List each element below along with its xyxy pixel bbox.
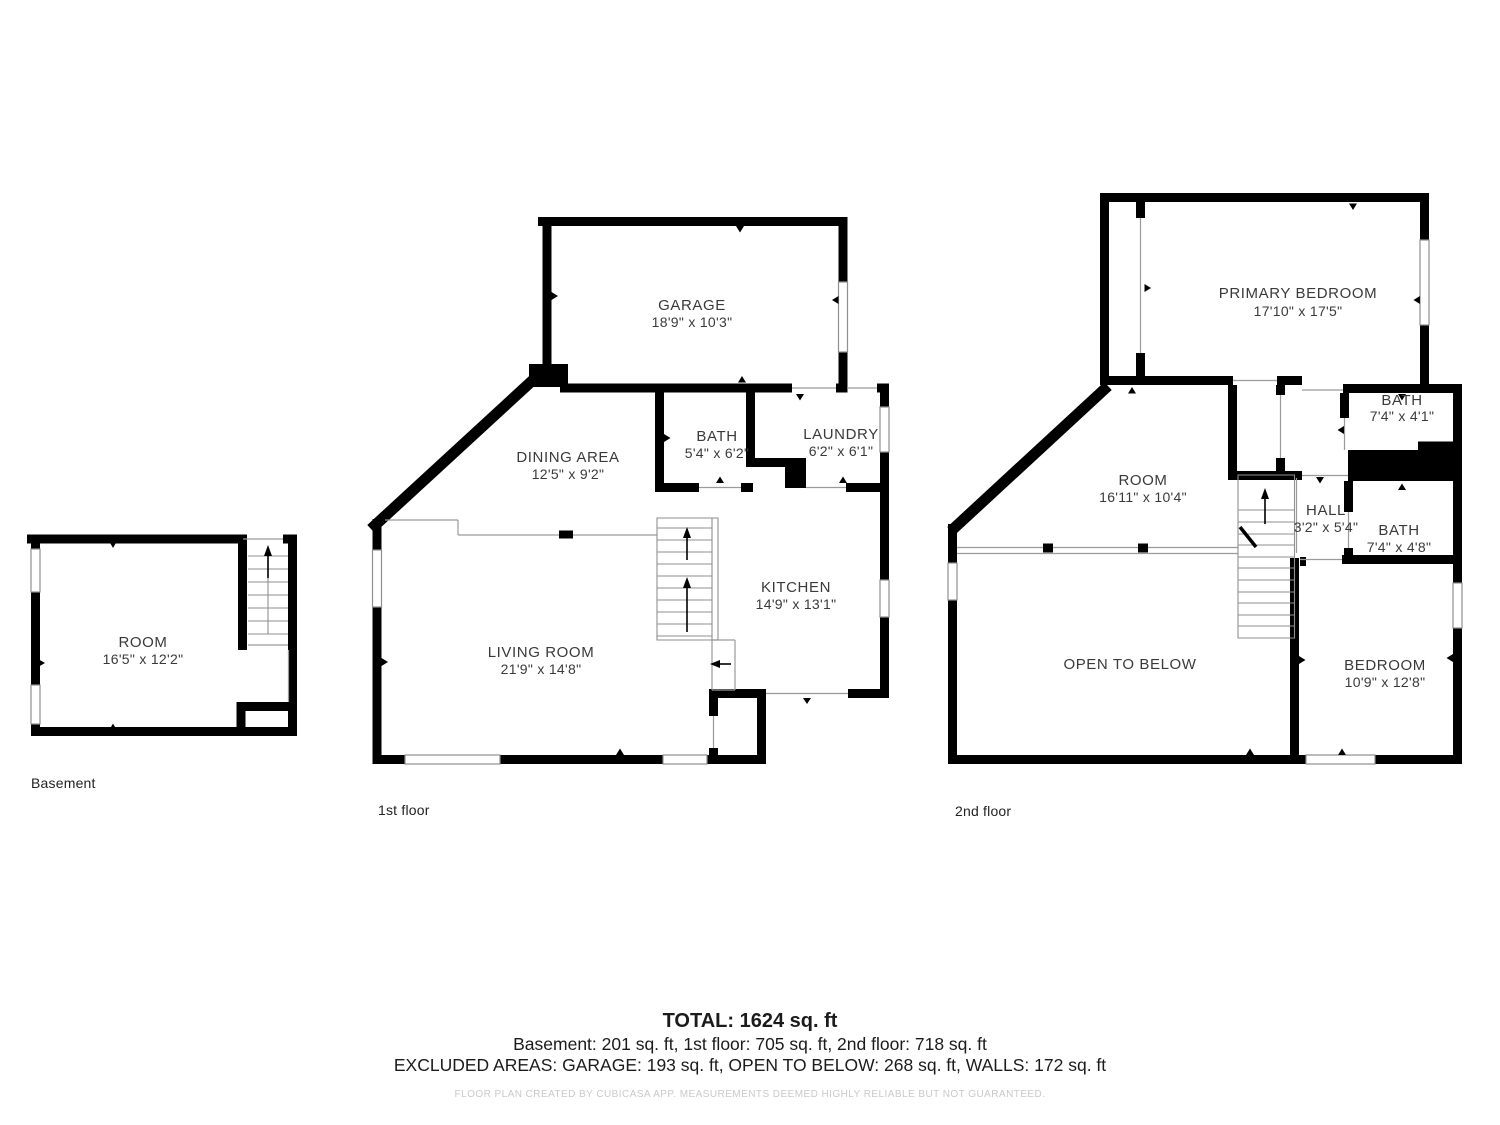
room-2f-name: ROOM: [1118, 472, 1167, 489]
basement-window-left-upper: [31, 549, 40, 592]
floorplan-canvas: ROOM 16'5" x 12'2" Basement: [0, 0, 1500, 1125]
bath-upper-dims: 7'4" x 4'1": [1370, 408, 1435, 424]
garage-dims: 18'9" x 10'3": [652, 314, 733, 330]
hall-name: HALL: [1306, 502, 1346, 519]
open-to-below-name: OPEN TO BELOW: [1063, 656, 1196, 673]
second-floor-door-openings: [957, 218, 1349, 560]
garage-name: GARAGE: [658, 297, 726, 314]
bedroom-window-right: [1453, 583, 1462, 628]
tick-open-bottom: [1246, 749, 1254, 756]
tick-laundry-door-bottom: [839, 477, 847, 484]
railing-post-1: [1043, 544, 1053, 553]
tick-living-left: [382, 658, 389, 666]
second-floor-bath-divider-band: [1348, 442, 1462, 482]
second-floor-stair-arrowhead: [1261, 488, 1269, 499]
living-room-window-left: [373, 550, 382, 607]
kitchen-name: KITCHEN: [761, 579, 831, 596]
second-floor-plan: PRIMARY BEDROOM 17'10" x 17'5" BATH 7'4"…: [948, 193, 1462, 819]
tick-garage-left: [552, 292, 559, 300]
tick-bath2-top: [1398, 484, 1406, 491]
second-floor-diagonal-wall: [951, 386, 1108, 531]
dining-area-name: DINING AREA: [516, 449, 619, 466]
tick-primary-top: [1349, 204, 1357, 211]
kitchen-window-right: [880, 580, 889, 617]
open-below-window-left: [948, 563, 957, 600]
bedroom-dims: 10'9" x 12'8": [1345, 674, 1426, 690]
primary-bedroom-window-right: [1420, 240, 1429, 325]
dining-railing-post: [559, 531, 573, 539]
tick-bath-door: [716, 477, 724, 484]
first-floor-walls: [377, 217, 889, 764]
first-floor-stair-arrowhead-1: [683, 527, 691, 538]
primary-bedroom-name: PRIMARY BEDROOM: [1219, 285, 1377, 302]
bedroom-name: BEDROOM: [1344, 657, 1426, 674]
basement-room-dims: 16'5" x 12'2": [103, 651, 184, 667]
room-2f-dims: 16'11" x 10'4": [1099, 489, 1187, 505]
laundry-window-right: [880, 407, 889, 452]
total-area-text: TOTAL: 1624 sq. ft: [0, 1010, 1500, 1033]
tick-bath1-left: [1338, 426, 1345, 434]
basement-tick-left: [38, 659, 45, 667]
tick-garage-top: [736, 226, 744, 233]
first-floor-stair-arrowhead-2: [683, 577, 691, 588]
bath-upper-name: BATH: [1381, 392, 1422, 409]
basement-room-name: ROOM: [118, 634, 167, 651]
second-floor-label: 2nd floor: [955, 803, 1011, 819]
basement-window-left-lower: [31, 685, 40, 724]
tick-living-bottom: [616, 749, 624, 756]
railing-post-2: [1138, 544, 1148, 553]
tick-garage-door: [738, 376, 746, 383]
tick-room-top: [1128, 387, 1136, 394]
first-floor-bath-nook-block: [785, 458, 806, 488]
kitchen-dims: 14'9" x 13'1": [756, 596, 837, 612]
living-room-window-bottom-2: [663, 755, 707, 764]
basement-stair-arrowhead: [264, 545, 272, 556]
floor-breakdown-text: Basement: 201 sq. ft, 1st floor: 705 sq.…: [0, 1034, 1500, 1055]
basement-plan: ROOM 16'5" x 12'2" Basement: [27, 535, 297, 792]
primary-bedroom-dims: 17'10" x 17'5": [1254, 303, 1343, 319]
laundry-dims: 6'2" x 6'1": [809, 443, 874, 459]
dining-area-dims: 12'5" x 9'2": [532, 466, 605, 482]
garage-window-right: [839, 282, 848, 352]
tick-laundry-door-top: [796, 394, 804, 401]
tick-bedroom-right: [1447, 654, 1454, 662]
tick-garage-right: [832, 296, 839, 304]
tick-primary-right: [1414, 296, 1421, 304]
first-floor-plan: GARAGE 18'9" x 10'3" DINING AREA 12'5" x…: [371, 217, 889, 818]
first-floor-label: 1st floor: [378, 802, 430, 818]
excluded-areas-text: EXCLUDED AREAS: GARAGE: 193 sq. ft, OPEN…: [0, 1055, 1500, 1076]
second-floor-stairs: [1238, 475, 1295, 638]
disclaimer-text: FLOOR PLAN CREATED BY CUBICASA APP. MEAS…: [0, 1089, 1500, 1100]
bath-lower-name: BATH: [1378, 522, 1419, 539]
tick-bath-wall: [664, 434, 671, 442]
living-room-name: LIVING ROOM: [488, 644, 595, 661]
tick-bedroom-bottom: [1338, 749, 1346, 756]
hall-dims: 3'2" x 5'4": [1294, 519, 1359, 535]
bath-lower-dims: 7'4" x 4'8": [1367, 539, 1432, 555]
basement-floor-label: Basement: [31, 775, 96, 791]
bedroom-window-bottom: [1306, 755, 1375, 764]
living-room-dims: 21'9" x 14'8": [501, 661, 582, 677]
tick-hall-top: [1316, 477, 1324, 484]
bath-1f-dims: 5'4" x 6'2": [685, 445, 750, 461]
basement-tick-top: [109, 541, 117, 548]
floor-plan-page: ROOM 16'5" x 12'2" Basement: [0, 0, 1500, 1125]
living-room-window-bottom-1: [405, 755, 500, 764]
tick-primary-left: [1145, 284, 1152, 292]
bath-1f-name: BATH: [696, 428, 737, 445]
laundry-name: LAUNDRY: [803, 426, 879, 443]
tick-divider: [1299, 656, 1306, 664]
second-floor-stair-cutline: [1240, 527, 1256, 547]
tick-kitchen-slider: [803, 698, 811, 704]
